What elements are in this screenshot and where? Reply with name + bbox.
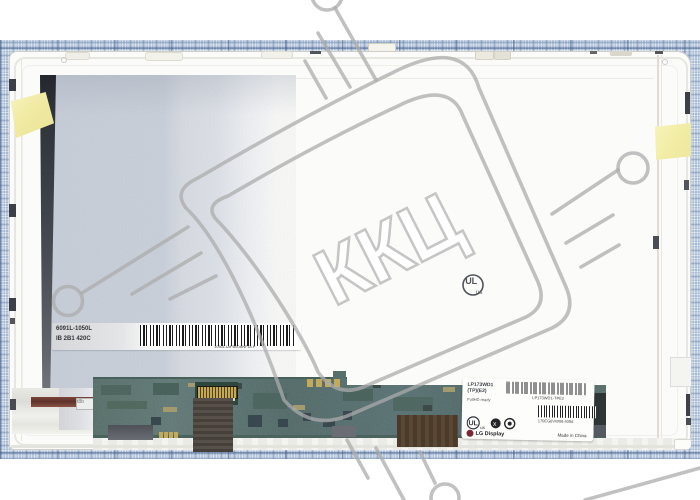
svg-text:ККЦ: ККЦ	[301, 175, 475, 322]
